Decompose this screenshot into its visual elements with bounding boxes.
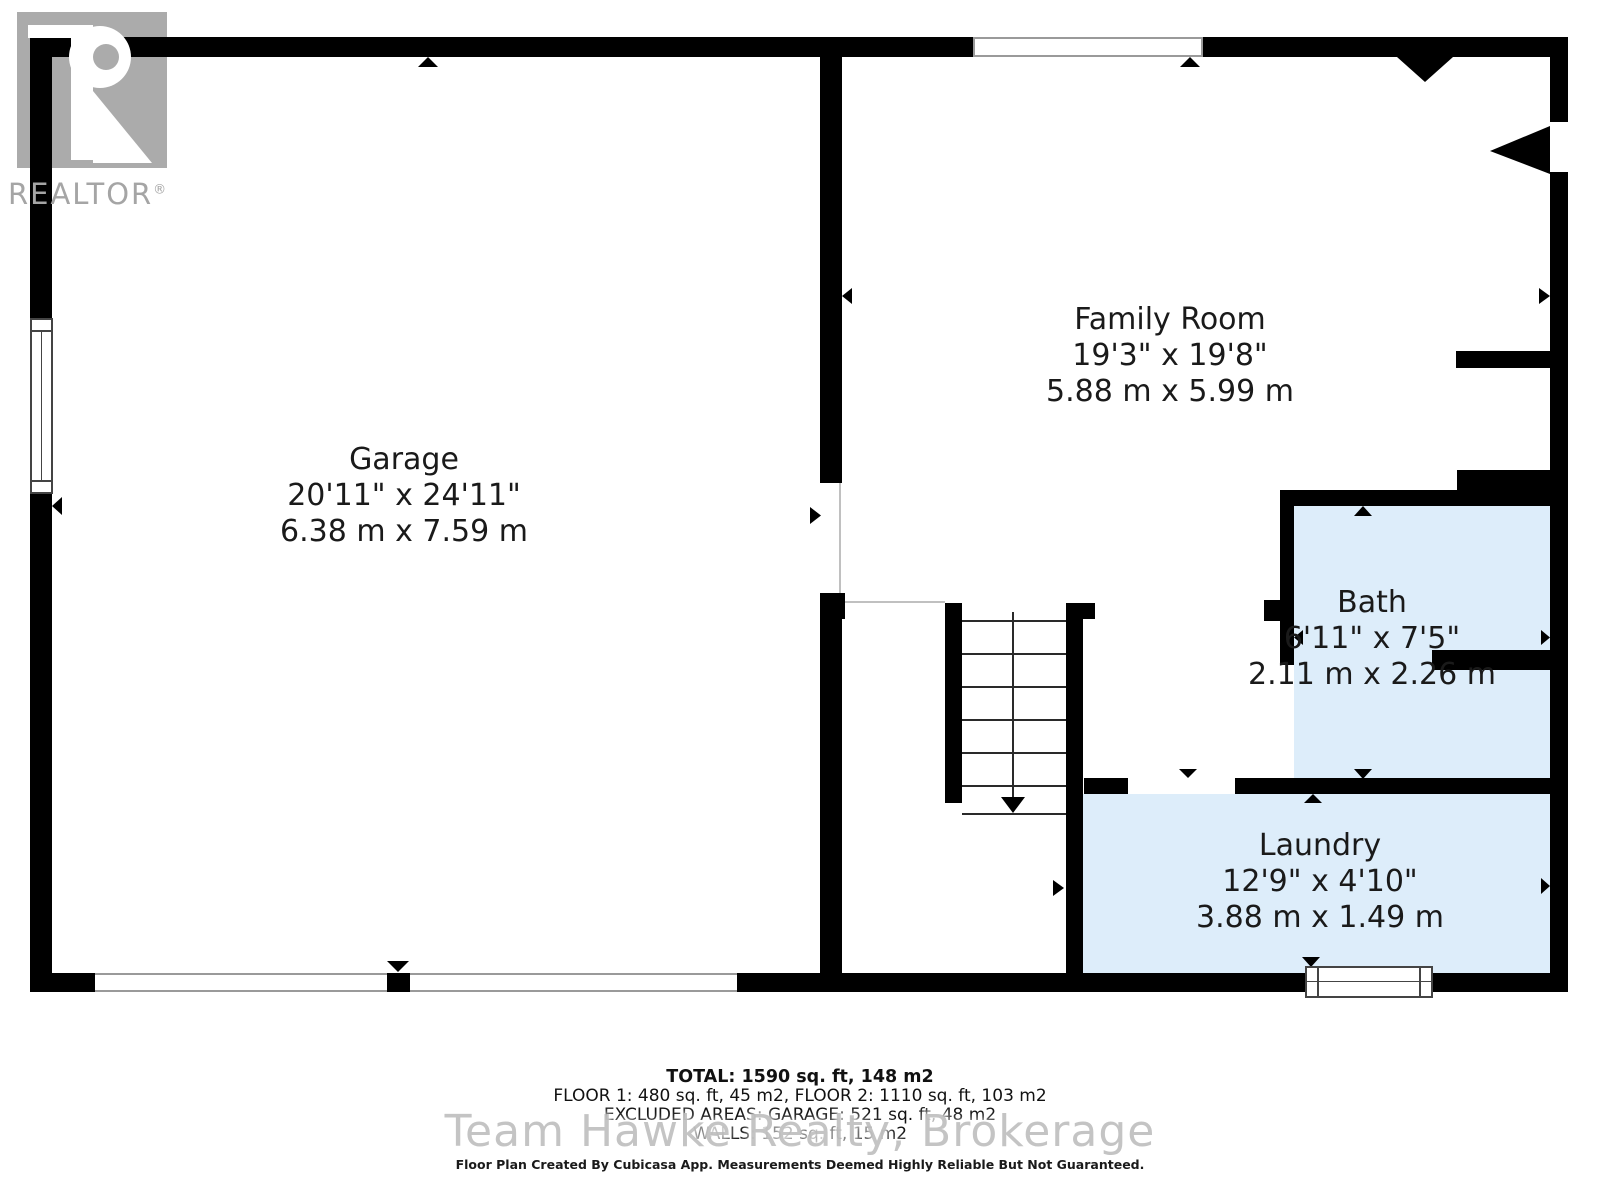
measure-arrow-down-icon (1179, 769, 1197, 778)
laundry-wall-top-left (1084, 778, 1128, 794)
room-dims-metric: 3.88 m x 1.49 m (1170, 900, 1470, 936)
stair-tread (962, 620, 1066, 622)
stairs-wall-left (945, 603, 962, 803)
window-mullion (1307, 981, 1431, 982)
realtor-logo-text: REALTOR® (8, 177, 168, 211)
wall-right-main (1550, 172, 1568, 992)
door-opening-edge (839, 483, 841, 593)
wall-top-right (1203, 37, 1568, 57)
garage-door-post (387, 973, 410, 992)
wall-stub-family-right (1456, 351, 1550, 368)
landing-edge (845, 601, 945, 603)
stairwell (962, 603, 1066, 815)
room-dims-metric: 5.88 m x 5.99 m (1020, 374, 1320, 410)
area-summary: TOTAL: 1590 sq. ft, 148 m2 FLOOR 1: 480 … (0, 1068, 1600, 1144)
stair-tread (962, 719, 1066, 721)
door-leaf (1490, 126, 1550, 174)
wall-bottom-corner (30, 973, 96, 992)
measure-arrow-up-icon (418, 57, 438, 67)
stairs-wall-right (1066, 603, 1083, 973)
registered-symbol: ® (153, 182, 168, 197)
summary-floors: FLOOR 1: 480 sq. ft, 45 m2, FLOOR 2: 111… (0, 1087, 1600, 1106)
stair-tread (962, 752, 1066, 754)
window-cap (32, 480, 51, 482)
wall-right-upper (1550, 37, 1568, 122)
measure-arrow-left-icon (842, 288, 852, 304)
room-name: Bath (1222, 585, 1522, 621)
room-dims-imperial: 19'3" x 19'8" (1020, 338, 1320, 374)
summary-total: TOTAL: 1590 sq. ft, 148 m2 (0, 1068, 1600, 1087)
disclaimer-text: Floor Plan Created By Cubicasa App. Meas… (0, 1157, 1600, 1172)
room-dims-imperial: 6'11" x 7'5" (1222, 621, 1522, 657)
floor-plan: REALTOR® (0, 0, 1600, 1200)
room-name: Family Room (1020, 302, 1320, 338)
measure-arrow-left-icon (52, 497, 62, 515)
room-dims-imperial: 12'9" x 4'10" (1170, 864, 1470, 900)
wall-divider-lower (820, 593, 842, 973)
measure-arrow-up-icon (1180, 57, 1200, 67)
bath-wall-top (1280, 490, 1550, 506)
window-cap (1317, 968, 1319, 996)
measure-arrow-down-icon (387, 961, 409, 972)
summary-walls: WALLS: 152 sq. ft, 15 m2 (0, 1125, 1600, 1144)
family-room-label: Family Room 19'3" x 19'8" 5.88 m x 5.99 … (1020, 302, 1320, 410)
stair-tread (962, 686, 1066, 688)
stair-tread (962, 813, 1066, 815)
bath-label: Bath 6'11" x 7'5" 2.11 m x 2.26 m (1222, 585, 1522, 693)
garage-door-opening (95, 973, 737, 992)
room-dims-metric: 6.38 m x 7.59 m (254, 514, 554, 550)
window-laundry (1305, 966, 1433, 998)
wall-divider-upper (820, 37, 842, 483)
measure-arrow-right-icon (1053, 880, 1064, 896)
window-top (973, 37, 1203, 57)
realtor-wordmark: REALTOR (8, 177, 153, 211)
stair-tread (962, 785, 1066, 787)
bath-wall-top-right-stub (1457, 470, 1568, 492)
garage-label: Garage 20'11" x 24'11" 6.38 m x 7.59 m (254, 442, 554, 550)
measure-arrow-right-icon (810, 507, 821, 524)
stairs-direction-line (1012, 612, 1014, 800)
room-dims-imperial: 20'11" x 24'11" (254, 478, 554, 514)
laundry-wall-top-right (1235, 778, 1550, 794)
measure-arrow-right-icon (1539, 288, 1550, 304)
wall-bottom-right (737, 973, 1568, 992)
stair-tread (962, 653, 1066, 655)
laundry-label: Laundry 12'9" x 4'10" 3.88 m x 1.49 m (1170, 828, 1470, 936)
wall-divider-corner (820, 593, 845, 619)
window-cap (1419, 968, 1421, 996)
realtor-r-icon (17, 12, 167, 168)
wall-notch (1397, 57, 1453, 82)
room-dims-metric: 2.11 m x 2.26 m (1222, 657, 1522, 693)
window-mullion (41, 332, 42, 480)
wall-left-lower (30, 494, 52, 992)
room-name: Laundry (1170, 828, 1470, 864)
stairs-wall-right-cap (1066, 603, 1095, 619)
room-name: Garage (254, 442, 554, 478)
summary-excluded: EXCLUDED AREAS: GARAGE: 521 sq. ft, 48 m… (0, 1106, 1600, 1125)
